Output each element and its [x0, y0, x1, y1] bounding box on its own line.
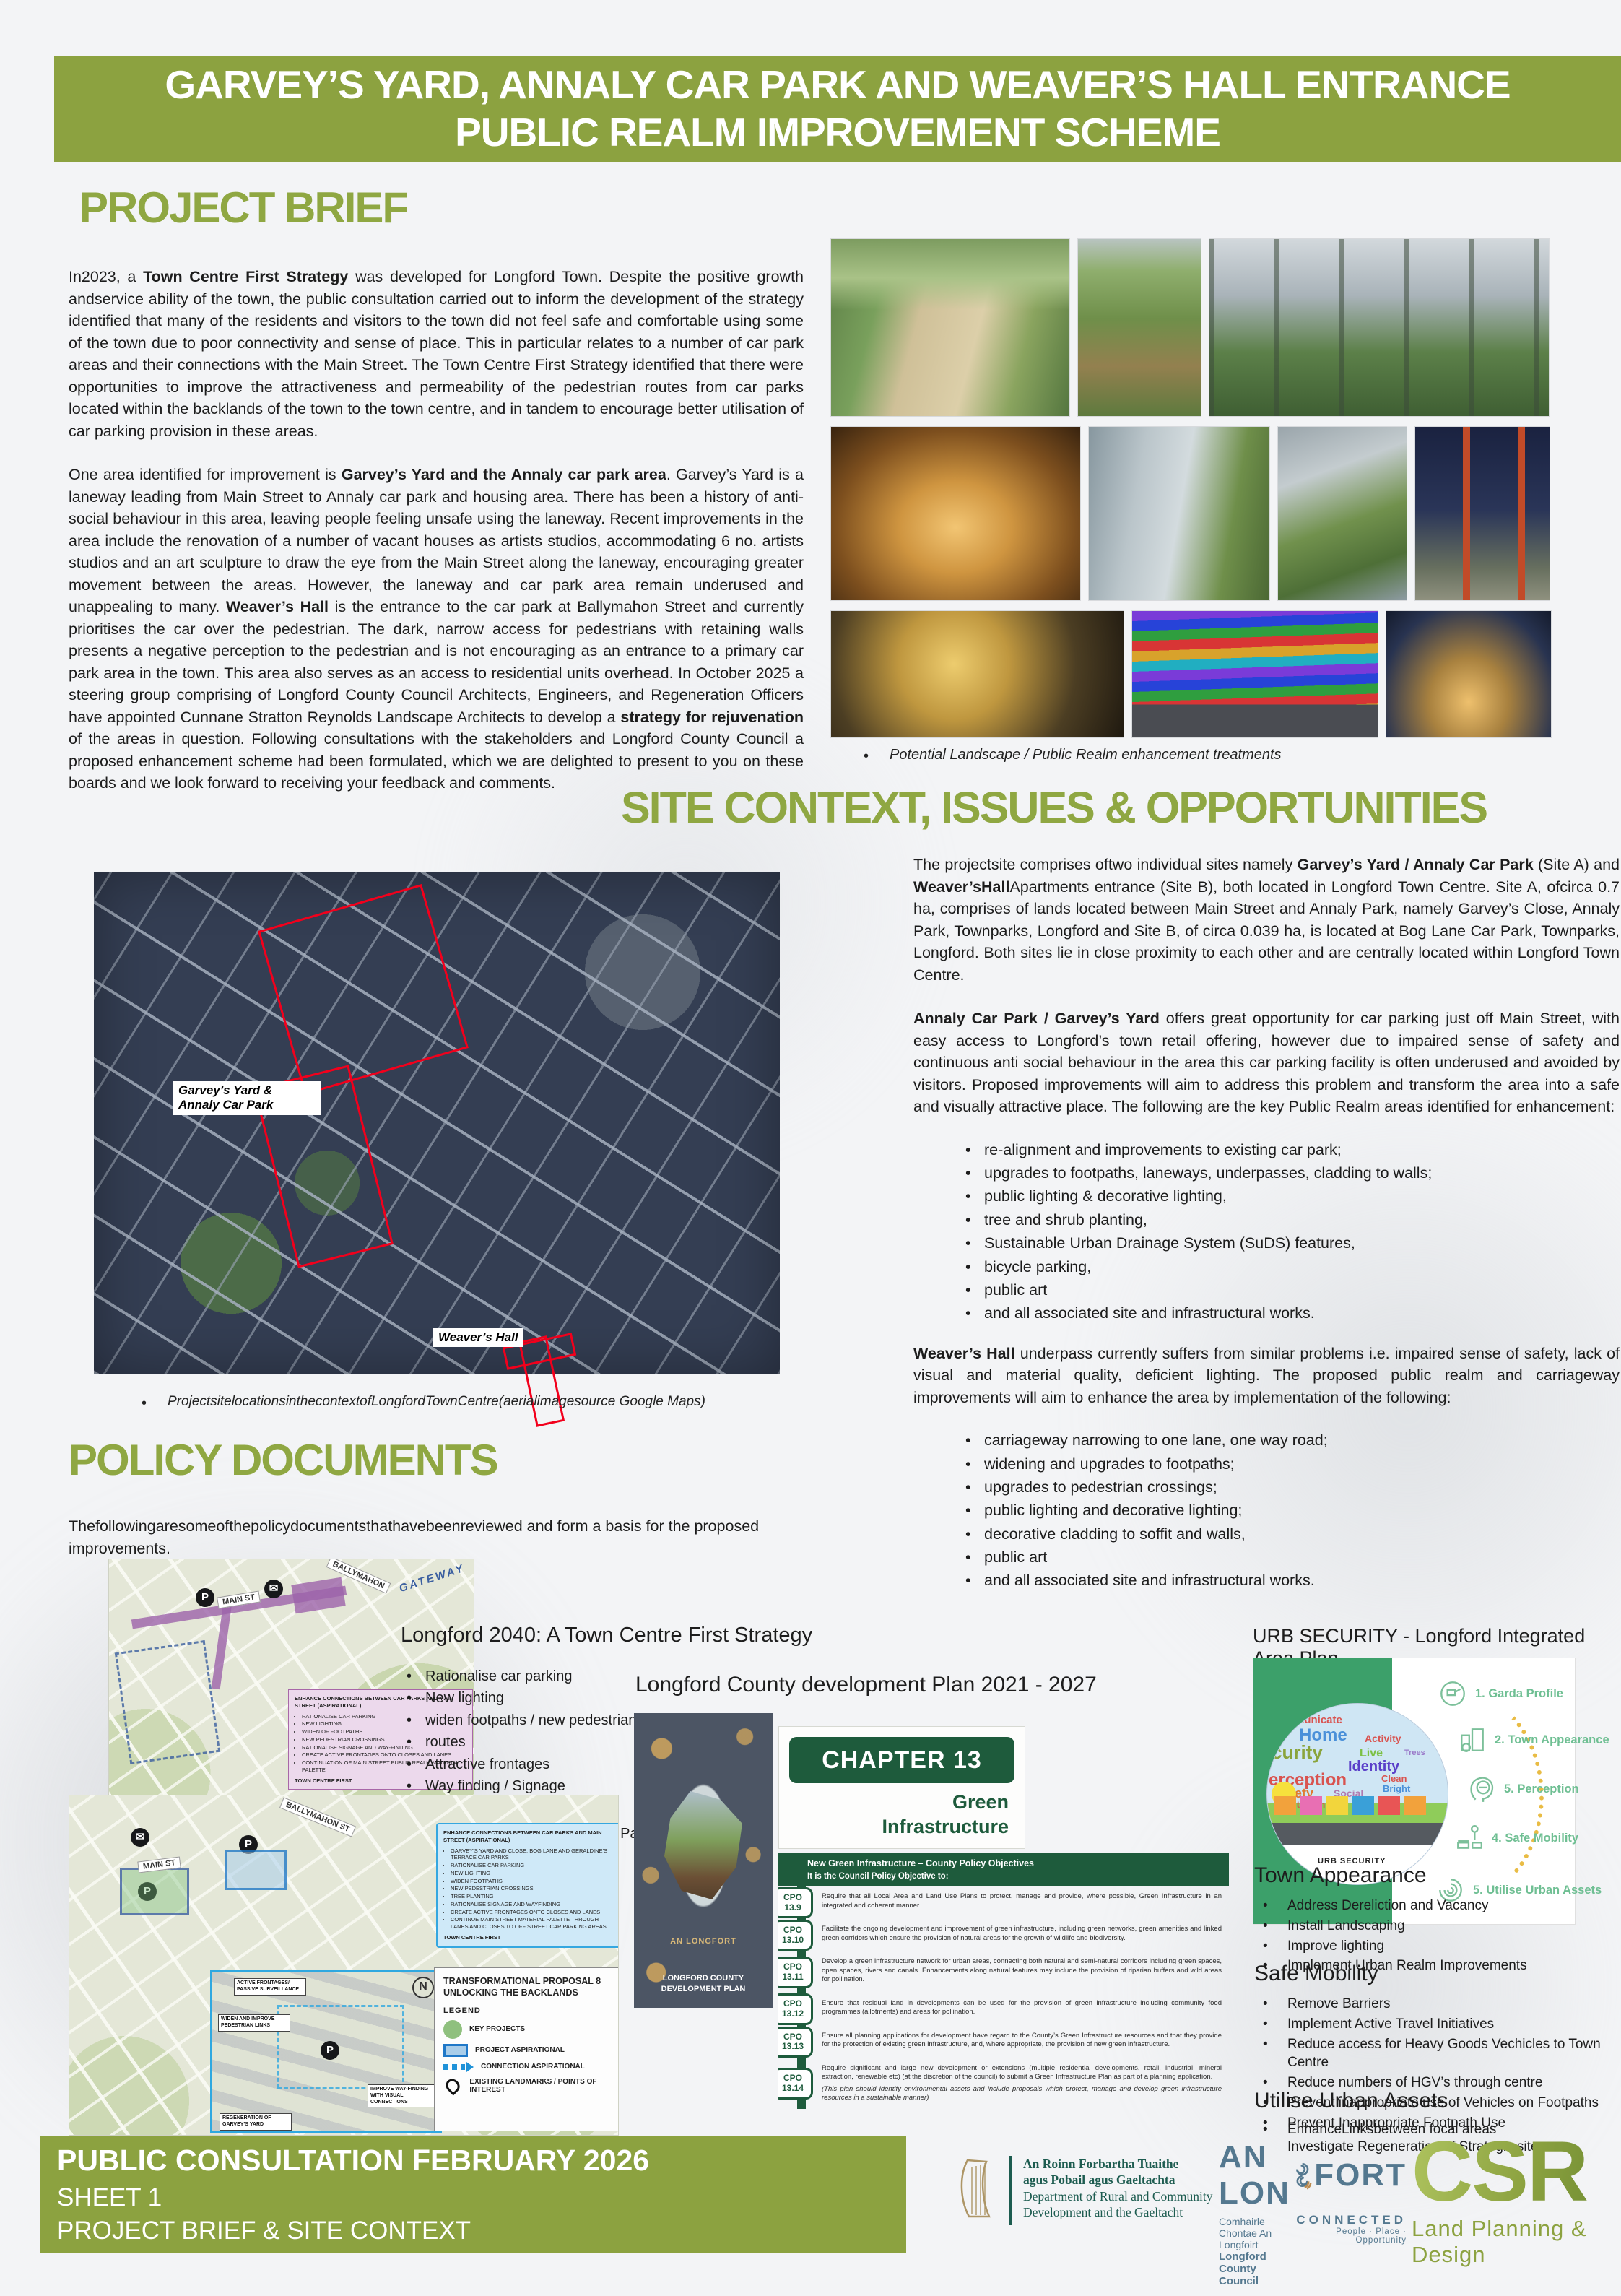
legend-item-label: PROJECT ASPIRATIONAL [475, 2046, 565, 2054]
cpo-objective-text: Facilitate the ongoing development and i… [822, 1925, 1222, 1942]
postbox-marker: ✉ [264, 1580, 283, 1598]
csr-wordmark: CSR [1412, 2129, 1621, 2214]
cpo-objective-text: Develop a green infrastructure network f… [822, 1957, 1222, 1983]
legend-row: CONNECTION ASPIRATIONAL [443, 2062, 615, 2072]
cpo-text: Require significant and large new develo… [813, 2058, 1229, 2109]
department-name-irish-2: agus Pobail agus Gaeltachta [1023, 2172, 1212, 2188]
legend-item-label: KEY PROJECTS [469, 2025, 525, 2033]
inset-callout: WIDEN AND IMPROVE PEDESTRIAN LINKS [218, 2014, 290, 2032]
photo-building-frontage-path [1088, 426, 1270, 601]
site-context-para2: Annaly Car Park / Garvey’s Yard offers g… [913, 1008, 1620, 1118]
list-item: Improve lighting [1254, 1937, 1615, 1956]
cpo-text: Require that all Local Area and Land Use… [813, 1886, 1229, 1919]
photo-caption-bullet: • [864, 748, 869, 765]
photo-street-tree-planting [1209, 238, 1550, 417]
annotation-item: NEW PEDESTRIAN CROSSINGS [451, 1885, 617, 1892]
urb-item-perception: 5. Perception [1466, 1774, 1579, 1804]
annotation-item: CREATE ACTIVE FRONTAGES ONTO CLOSES AND … [451, 1909, 617, 1916]
utilise-urban-assets-heading: Utilise Urban Assets [1254, 2089, 1448, 2113]
list-item: Reduce access for Heavy Goods Vechicles … [1254, 2035, 1621, 2073]
longford-2040-heading: Longford 2040: A Town Centre First Strat… [401, 1624, 812, 1647]
list-item: Implement Active Travel Initiatives [1254, 2015, 1621, 2034]
urb-item-label: 4. Safe Mobility [1492, 1832, 1578, 1845]
transport-marker: ✉ [131, 1828, 149, 1847]
legend-item-label: EXISTING LANDMARKS / POINTS OF INTEREST [469, 2078, 615, 2094]
csr-tagline: Land Planning & Design [1412, 2216, 1621, 2268]
list-item: public lighting and decorative lighting; [960, 1500, 1620, 1520]
ballymahon-st-label: BALLYMAHON ST [279, 1797, 356, 1837]
photo-lit-stone-archway [830, 426, 1081, 601]
poster-sheet-1: GARVEY’S YARD, ANNALY CAR PARK AND WEAVE… [0, 0, 1621, 2296]
title-banner: GARVEY’S YARD, ANNALY CAR PARK AND WEAVE… [54, 56, 1621, 162]
annotation-title: ENHANCE CONNECTIONS BETWEEN CAR PARKS AN… [443, 1829, 617, 1844]
cpo-badge: CPO 13.11 [778, 1957, 813, 1988]
garveys-yard-inset-map: P ACTIVE FRONTAGES/ PASSIVE SURVEILLANCE… [210, 1970, 442, 2133]
list-item: upgrades to footpaths, laneways, underpa… [960, 1163, 1620, 1183]
cpo-badge-top: CPO [778, 2032, 811, 2042]
cpo-badge-top: CPO [778, 1893, 811, 1903]
legend-title-1: TRANSFORMATIONAL PROPOSAL 8 [443, 1975, 615, 1987]
photo-grid-caption: Potential Landscape / Public Realm enhan… [890, 747, 1282, 763]
cpo-header-line1: New Green Infrastructure – County Policy… [807, 1858, 1219, 1868]
inset-callout: IMPROVE WAY-FINDING WITH VISUAL CONNECTI… [368, 2084, 440, 2107]
cpo-badge: CPO 13.10 [778, 1920, 813, 1951]
cpo-table-header: New Green Infrastructure – County Policy… [778, 1853, 1229, 1886]
compass-icon: N [412, 1977, 434, 1998]
list-item: public art [960, 1547, 1620, 1567]
list-item: and all associated site and infrastructu… [960, 1303, 1620, 1323]
list-item: carriageway narrowing to one lane, one w… [960, 1430, 1620, 1450]
department-name-english-2: Development and the Gaeltacht [1023, 2204, 1212, 2220]
annotation-item: RATIONALISE SIGNAGE AND WAYFINDING [451, 1901, 617, 1908]
annotation-footer: TOWN CENTRE FIRST [443, 1934, 617, 1941]
site-context-heading: SITE CONTEXT, ISSUES & OPPORTUNITIES [621, 786, 1487, 830]
poster-title-line1: GARVEY’S YARD, ANNALY CAR PARK AND WEAVE… [54, 61, 1621, 108]
cpo-badge-top: CPO [778, 1999, 811, 2009]
house-graphic [1274, 1796, 1296, 1815]
annotation-item: NEW LIGHTING [451, 1870, 617, 1877]
landmark-pin-icon [443, 2076, 463, 2095]
poster-title-line2: PUBLIC REALM IMPROVEMENT SCHEME [54, 108, 1621, 156]
cpo-objective-text: Require that all Local Area and Land Use… [822, 1892, 1222, 1910]
cpo-badge: CPO 13.13 [778, 2027, 813, 2058]
cpo-text: Ensure all planning applications for dev… [813, 2026, 1229, 2058]
list-item: upgrades to pedestrian crossings; [960, 1477, 1620, 1497]
cdp-cover-brand: AN LONGFORT [634, 1937, 773, 1946]
cdp-cover-title: LONGFORD COUNTY DEVELOPMENT PLAN [634, 1973, 773, 1995]
site-context-text: The projectsite comprises oftwo individu… [913, 854, 1620, 1594]
department-name-irish-1: An Roinn Forbartha Tuaithe [1023, 2156, 1212, 2172]
cpo-badge-num: 13.14 [778, 2084, 811, 2094]
cpo-objectives-table: New Green Infrastructure – County Policy… [778, 1853, 1229, 2136]
department-name: An Roinn Forbartha Tuaithe agus Pobail a… [1023, 2156, 1212, 2221]
cpo-objective-note: (This plan should identify environmental… [822, 2085, 1222, 2103]
urb-item-label: 5. Utilise Urban Assets [1473, 1884, 1602, 1897]
key-project-area [120, 1868, 189, 1915]
map2-legend: TRANSFORMATIONAL PROPOSAL 8 UNLOCKING TH… [434, 1967, 619, 2131]
town-appearance-icon [1457, 1725, 1487, 1755]
site-context-para1: The projectsite comprises oftwo individu… [913, 854, 1620, 986]
footer-title: PUBLIC CONSULTATION FEBRUARY 2026 [57, 2144, 889, 2178]
safe-mobility-heading: Safe Mobility [1254, 1962, 1378, 1986]
house-graphic [1300, 1796, 1322, 1815]
cpo-badge-num: 13.10 [778, 1936, 811, 1946]
urb-item-label: 2. Town Appearance [1495, 1733, 1609, 1747]
house-graphic [1326, 1796, 1348, 1815]
spiral-icon [1292, 2149, 1313, 2201]
legend-row: PROJECT ASPIRATIONAL [443, 2044, 615, 2057]
photo-landscaped-path-with-benches [830, 238, 1070, 417]
cpo-objective-text: Ensure all planning applications for dev… [822, 2032, 1222, 2049]
aspirational-zone-outline [115, 1640, 220, 1764]
longford-county-council-logo: AN LON FORT Comhairle Chontae An Longfoi… [1219, 2139, 1407, 2287]
legend-label: LEGEND [443, 2006, 615, 2015]
list-item: public lighting & decorative lighting, [960, 1186, 1620, 1206]
cpo-row: CPO 13.12 Ensure that residual land in d… [806, 1993, 1229, 2026]
cpo-badge-num: 13.13 [778, 2042, 811, 2052]
photo-uplit-trees-plaza [830, 610, 1124, 738]
annotation-item: GARVEY’S YARD AND CLOSE, BOG LANE AND GE… [451, 1847, 617, 1862]
list-item: Install Landscaping [1254, 1917, 1615, 1936]
annotation-item: TREE PLANTING [451, 1893, 617, 1900]
legend-row: KEY PROJECTS [443, 2020, 615, 2039]
government-department-logo: An Roinn Forbartha Tuaithe agus Pobail a… [955, 2156, 1212, 2225]
project-brief-text: In2023, a Town Centre First Strategy was… [69, 266, 804, 816]
list-item: public art [960, 1280, 1620, 1300]
list-item: tree and shrub planting, [960, 1210, 1620, 1230]
policy-intro: Thefollowingaresomeofthepolicydocumentst… [69, 1515, 762, 1559]
urb-item-safe-mobility: 4. Safe Mobility [1454, 1823, 1578, 1853]
site-context-para3: Weaver’s Hall underpass currently suffer… [913, 1343, 1620, 1409]
cdp-heading: Longford County development Plan 2021 - … [635, 1673, 1097, 1697]
footer-banner: PUBLIC CONSULTATION FEBRUARY 2026 SHEET … [40, 2136, 906, 2253]
chapter-title-line2: Infrastructure [882, 1815, 1009, 1840]
photo-lit-boardwalk [1386, 610, 1552, 738]
cpo-header-line2: It is the Council Policy Objective to: [807, 1872, 1219, 1881]
wordcloud-word: curity [1272, 1741, 1323, 1764]
list-item: widening and upgrades to footpaths; [960, 1454, 1620, 1474]
site-b-label: Weaver’s Hall [433, 1328, 523, 1347]
site-context-bullets-2: carriageway narrowing to one lane, one w… [960, 1430, 1620, 1591]
footer-sheet-title: PROJECT BRIEF & SITE CONTEXT [57, 2217, 889, 2245]
longford-logo-left: AN LON [1219, 2139, 1290, 2211]
cpo-badge-num: 13.11 [778, 1972, 811, 1983]
annotation-bullets: GARVEY’S YARD AND CLOSE, BOG LANE AND GE… [443, 1847, 617, 1931]
pedestrian-link-path [277, 2005, 404, 2089]
cpo-row: CPO 13.10 Facilitate the ongoing develop… [806, 1919, 1229, 1951]
project-aspirational-swatch-icon [443, 2044, 468, 2057]
cpo-row: CPO 13.13 Ensure all planning applicatio… [806, 2026, 1229, 2058]
site-a-outline [258, 884, 469, 1095]
perception-icon [1466, 1774, 1497, 1804]
cpo-badge: CPO 13.12 [778, 1993, 813, 2025]
cpo-badge-top: CPO [778, 1962, 811, 1972]
list-item: re-alignment and improvements to existin… [960, 1140, 1620, 1160]
urb-item-label: 1. Garda Profile [1475, 1687, 1563, 1701]
aspirational-block [291, 1577, 345, 1613]
chapter-13-title: Green Infrastructure [882, 1790, 1009, 1840]
cpo-objective-text: Require significant and large new develo… [822, 2064, 1222, 2081]
safe-mobility-icon [1454, 1823, 1485, 1853]
chapter-13-cover: CHAPTER 13 Green Infrastructure [778, 1726, 1025, 1849]
site-a-label: Garvey’s Yard & Annaly Car Park [173, 1081, 321, 1115]
map-caption-bullet: • [142, 1395, 147, 1412]
backlands-proposal-map: P P ✉ MAIN ST BALLYMAHON ST ENHANCE CONN… [69, 1795, 619, 2136]
list-item: Address Dereliction and Vacancy [1254, 1897, 1615, 1915]
wordcloud-word: municate [1295, 1714, 1342, 1726]
list-item: Sustainable Urban Drainage System (SuDS)… [960, 1233, 1620, 1253]
longford-logo-right: FORT [1314, 2157, 1407, 2193]
garda-profile-icon [1438, 1678, 1468, 1709]
cpo-row: CPO 13.11 Develop a green infrastructure… [806, 1951, 1229, 1993]
inset-callout: ACTIVE FRONTAGES/ PASSIVE SURVEILLANCE [234, 1978, 306, 1996]
parking-marker: P [196, 1588, 214, 1607]
photo-suds-planter [1277, 426, 1407, 601]
connected-wordmark: CONNECTED [1296, 2213, 1407, 2227]
cpo-text: Facilitate the ongoing development and i… [813, 1919, 1229, 1951]
legend-item-label: CONNECTION ASPIRATIONAL [481, 2063, 585, 2071]
inset-callout: REGENERATION OF GARVEY’S YARD [220, 2113, 292, 2131]
connected-tagline: People · Place · Opportunity [1296, 2227, 1407, 2245]
csr-logo: CSR Land Planning & Design [1412, 2129, 1621, 2268]
cpo-badge-top: CPO [778, 2074, 811, 2084]
cpo-text: Develop a green infrastructure network f… [813, 1951, 1229, 1993]
list-item: Remove Barriers [1254, 1995, 1621, 2014]
photo-garden-laneway [1077, 238, 1201, 417]
annotation-item: RATIONALISE CAR PARKING [451, 1862, 617, 1869]
connection-aspirational-arrow-icon [466, 2062, 474, 2072]
cpo-badge: CPO 13.14 [778, 2068, 813, 2100]
aerial-map-caption: ProjectsitelocationsinthecontextofLongfo… [168, 1394, 705, 1410]
policy-documents-heading: POLICY DOCUMENTS [69, 1439, 497, 1482]
footer-sheet-number: SHEET 1 [57, 2183, 889, 2212]
project-brief-para2: One area identified for improvement is G… [69, 464, 804, 794]
cpo-text: Ensure that residual land in development… [813, 1993, 1229, 2026]
town-appearance-heading: Town Appearance [1254, 1863, 1427, 1888]
legend-title-2: UNLOCKING THE BACKLANDS [443, 1987, 615, 1998]
annotation-item: CONTINUE MAIN STREET MATERIAL PALETTE TH… [451, 1916, 617, 1931]
project-aspirational-area [225, 1850, 287, 1890]
cpo-table-body: CPO 13.9 Require that all Local Area and… [797, 1886, 1229, 2109]
cpo-row: CPO 13.14 Require significant and large … [806, 2058, 1229, 2109]
cpo-badge-num: 13.12 [778, 2009, 811, 2019]
connection-aspirational-dash-icon [443, 2064, 465, 2070]
connected-block: CONNECTED People · Place · Opportunity [1296, 2211, 1407, 2245]
project-brief-para1: In2023, a Town Centre First Strategy was… [69, 266, 804, 442]
map2-annotation-box: ENHANCE CONNECTIONS BETWEEN CAR PARKS AN… [436, 1823, 619, 1948]
key-projects-swatch-icon [443, 2020, 462, 2039]
chapter-13-banner: CHAPTER 13 [789, 1737, 1014, 1783]
list-item: decorative cladding to soffit and walls, [960, 1524, 1620, 1544]
council-names: Comhairle Chontae An Longfoirt Longford … [1219, 2211, 1296, 2287]
cpo-badge-num: 13.9 [778, 1903, 811, 1913]
cpo-badge: CPO 13.9 [778, 1887, 813, 1919]
cpo-objective-text: Ensure that residual land in development… [822, 1999, 1222, 2016]
urb-item-label: 5. Perception [1504, 1782, 1579, 1796]
urb-item-garda-profile: 1. Garda Profile [1438, 1678, 1563, 1709]
list-item: and all associated site and infrastructu… [960, 1570, 1620, 1590]
photo-red-pole-lighting-park [1414, 426, 1550, 601]
aerial-map: Garvey’s Yard & Annaly Car Park Weaver’s… [94, 872, 780, 1374]
harp-icon [955, 2156, 999, 2222]
photo-rainbow-lit-underpass [1131, 610, 1378, 738]
chapter-title-line1: Green [882, 1790, 1009, 1815]
annotation-item: WIDEN FOOTPATHS [451, 1878, 617, 1885]
parking-marker: P [321, 2041, 339, 2060]
cdp-cover-image: AN LONGFORT LONGFORD COUNTY DEVELOPMENT … [634, 1713, 773, 2008]
list-item: bicycle parking, [960, 1257, 1620, 1277]
council-name-irish: Comhairle Chontae An Longfoirt [1219, 2216, 1296, 2250]
cpo-row: CPO 13.9 Require that all Local Area and… [806, 1886, 1229, 1919]
council-name-english: Longford County Council [1219, 2250, 1296, 2287]
project-brief-heading: PROJECT BRIEF [79, 186, 407, 230]
legend-row: EXISTING LANDMARKS / POINTS OF INTEREST [443, 2077, 615, 2094]
site-context-bullets-1: re-alignment and improvements to existin… [960, 1140, 1620, 1324]
longford-logo-wordmark: AN LON FORT [1219, 2139, 1407, 2211]
gateway-label: GATEWAY [398, 1562, 466, 1595]
logo-divider [1009, 2156, 1012, 2225]
department-name-english-1: Department of Rural and Community [1023, 2188, 1212, 2204]
cpo-badge-top: CPO [778, 1925, 811, 1936]
urb-item-town-appearance: 2. Town Appearance [1457, 1725, 1609, 1755]
county-shape-graphic [660, 1791, 747, 1899]
